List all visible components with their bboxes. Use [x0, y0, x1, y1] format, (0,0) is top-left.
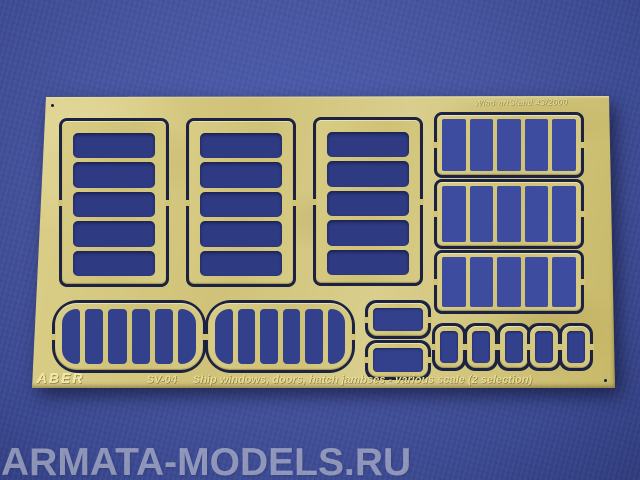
- rounded-frame-opening: [328, 309, 346, 364]
- grid-opening: [525, 119, 549, 171]
- window-frame-cutout: [59, 118, 169, 287]
- window-opening: [200, 221, 282, 246]
- small-frame-cutout: [365, 300, 431, 339]
- rounded-frame-opening: [260, 309, 278, 364]
- rounded-frame-opening: [178, 309, 196, 364]
- drill-hole: [51, 104, 54, 107]
- small-frame-opening: [373, 308, 423, 331]
- window-opening: [200, 251, 282, 276]
- rounded-frame-opening: [215, 309, 233, 364]
- rounded-frame-part: [55, 303, 203, 370]
- small-frame-part: [467, 326, 495, 368]
- watermark-text: ARMATA-MODELS.RU: [1, 441, 411, 480]
- grid-opening: [442, 119, 466, 171]
- grid-opening: [470, 119, 494, 171]
- small-frame-opening: [535, 331, 553, 363]
- grid-frame-cutout: [434, 179, 584, 249]
- rounded-frame-opening: [238, 309, 256, 364]
- window-frame-part: [316, 120, 420, 283]
- small-frame-opening: [505, 331, 523, 363]
- etched-serial-text: Wlad-artStand 43/2000: [475, 97, 615, 107]
- small-frame-part: [435, 326, 463, 368]
- rounded-frame-opening: [155, 309, 173, 364]
- window-opening: [73, 221, 155, 246]
- rounded-frame-opening: [132, 309, 150, 364]
- rounded-frame-opening: [283, 309, 301, 364]
- window-frame-part: [189, 121, 293, 284]
- window-opening: [327, 132, 409, 157]
- small-frame-opening: [567, 331, 585, 363]
- small-frame-cutout: [527, 323, 561, 371]
- small-frame-cutout: [464, 323, 498, 371]
- grid-opening: [442, 257, 466, 307]
- window-opening: [73, 192, 155, 217]
- grid-opening: [525, 257, 549, 307]
- grid-opening: [552, 257, 576, 307]
- grid-frame-cutout: [434, 250, 584, 314]
- small-frame-part: [530, 326, 558, 368]
- rounded-frame-opening: [85, 309, 103, 364]
- small-frame-cutout: [432, 323, 466, 371]
- grid-frame-part: [437, 115, 581, 175]
- grid-opening: [470, 257, 494, 307]
- grid-opening: [552, 186, 576, 242]
- window-opening: [327, 161, 409, 186]
- catalog-number-text: SV-04: [147, 374, 177, 386]
- grid-frame-part: [437, 182, 581, 246]
- window-opening: [200, 162, 282, 187]
- window-opening: [327, 250, 409, 275]
- window-opening: [73, 162, 155, 187]
- small-frame-opening: [373, 348, 423, 372]
- small-frame-opening: [440, 331, 458, 363]
- grid-opening: [525, 186, 549, 242]
- window-frame-part: [62, 121, 166, 284]
- grid-opening: [497, 119, 521, 171]
- window-opening: [200, 133, 282, 158]
- rounded-frame-part: [208, 303, 352, 370]
- brand-text: ABER: [37, 370, 85, 386]
- description-text: Ship windows, doors, hatch jambses - var…: [193, 374, 532, 386]
- small-frame-part: [500, 326, 528, 368]
- window-opening: [327, 220, 409, 245]
- grid-opening: [497, 186, 521, 242]
- small-frame-part: [562, 326, 590, 368]
- small-frame-opening: [472, 331, 490, 363]
- window-opening: [73, 251, 155, 276]
- brass-sheet: Wlad-artStand 43/2000: [31, 95, 616, 389]
- rounded-frame-opening: [62, 309, 80, 364]
- grid-opening: [470, 186, 494, 242]
- small-frame-cutout: [559, 323, 593, 371]
- window-opening: [200, 192, 282, 217]
- window-frame-cutout: [313, 117, 423, 286]
- grid-frame-part: [437, 253, 581, 311]
- rounded-frame-opening: [108, 309, 126, 364]
- drill-hole: [604, 379, 607, 382]
- small-frame-part: [368, 303, 428, 336]
- window-frame-cutout: [186, 118, 296, 287]
- window-opening: [327, 191, 409, 216]
- grid-opening: [497, 257, 521, 307]
- grid-opening: [552, 119, 576, 171]
- window-opening: [73, 133, 155, 158]
- etched-bottom-text: ABER SV-04 Ship windows, doors, hatch ja…: [37, 370, 607, 386]
- brass-sheet-shadow: Wlad-artStand 43/2000: [31, 95, 616, 389]
- rounded-frame-opening: [305, 309, 323, 364]
- rounded-frame-cutout: [205, 300, 355, 373]
- grid-opening: [442, 186, 466, 242]
- rounded-frame-cutout: [52, 300, 206, 373]
- photo-background: Wlad-artStand 43/2000: [0, 0, 640, 480]
- grid-frame-cutout: [434, 112, 584, 178]
